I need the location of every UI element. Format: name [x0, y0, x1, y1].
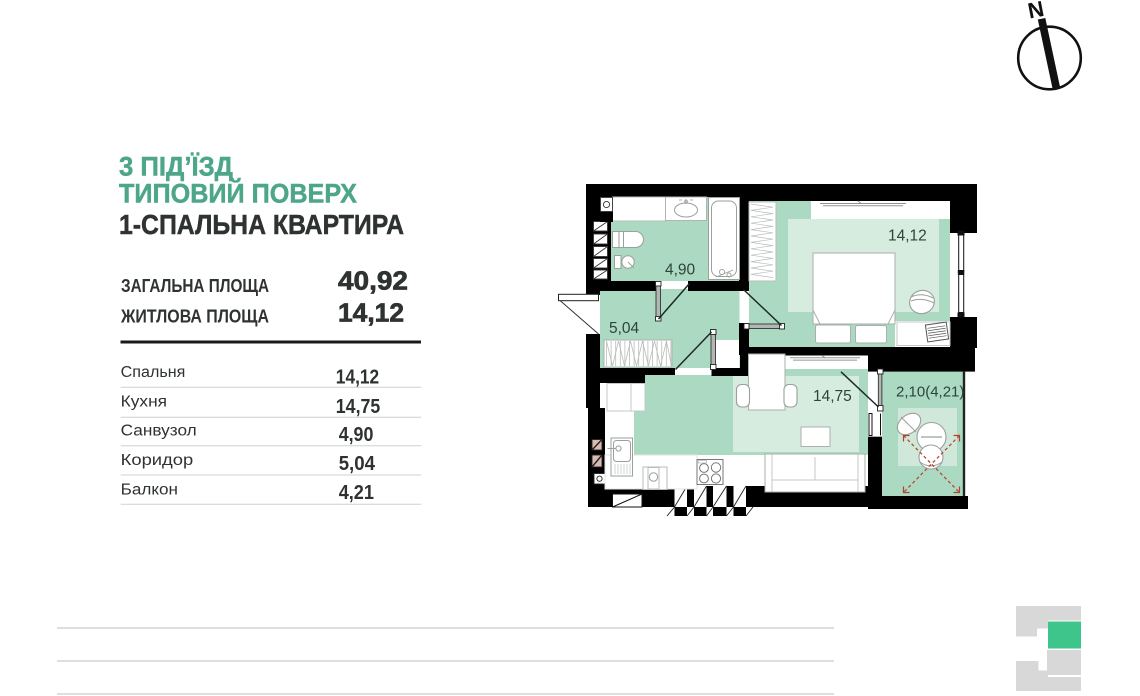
svg-text:4,21: 4,21 — [339, 482, 374, 504]
svg-text:1-СПАЛЬНА КВАРТИРА: 1-СПАЛЬНА КВАРТИРА — [119, 209, 404, 240]
svg-text:14,12: 14,12 — [336, 366, 379, 388]
svg-text:5,04: 5,04 — [609, 320, 640, 337]
svg-text:14,75: 14,75 — [336, 396, 381, 418]
svg-text:Спальня: Спальня — [121, 364, 186, 381]
svg-text:ЖИТЛОВА ПЛОЩА: ЖИТЛОВА ПЛОЩА — [120, 307, 269, 327]
svg-text:Коридор: Коридор — [121, 452, 194, 469]
svg-text:5,04: 5,04 — [339, 453, 376, 475]
svg-text:4,90: 4,90 — [339, 424, 374, 446]
svg-text:2,10(4,21): 2,10(4,21) — [896, 384, 964, 401]
svg-text:Санвузол: Санвузол — [121, 423, 197, 440]
svg-text:14,75: 14,75 — [813, 388, 852, 405]
svg-text:14,12: 14,12 — [338, 298, 404, 328]
svg-text:Кухня: Кухня — [121, 394, 167, 411]
svg-text:ЗАГАЛЬНА ПЛОЩА: ЗАГАЛЬНА ПЛОЩА — [121, 276, 269, 296]
svg-text:Балкон: Балкон — [121, 482, 178, 499]
svg-text:ТИПОВИЙ ПОВЕРХ: ТИПОВИЙ ПОВЕРХ — [119, 178, 357, 209]
svg-text:3 ПІД’ЇЗД: 3 ПІД’ЇЗД — [119, 152, 233, 182]
svg-text:4,90: 4,90 — [665, 262, 696, 279]
svg-text:40,92: 40,92 — [338, 266, 408, 296]
svg-text:14,12: 14,12 — [888, 228, 927, 245]
